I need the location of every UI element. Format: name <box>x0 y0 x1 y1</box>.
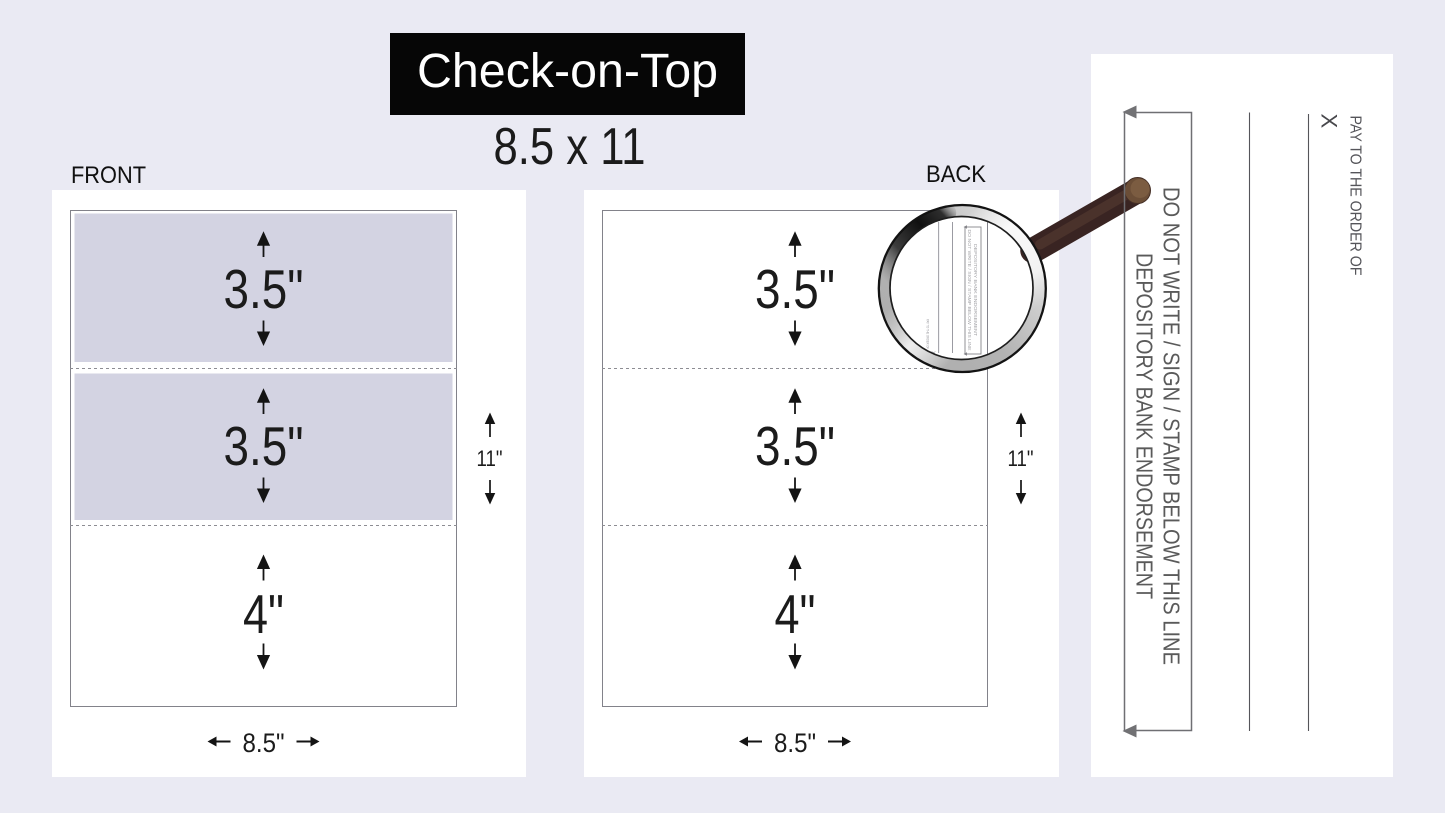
svg-text:4": 4" <box>775 583 816 645</box>
svg-text:3.5": 3.5" <box>755 415 835 477</box>
svg-text:X: X <box>1317 114 1342 129</box>
svg-text:8.5": 8.5" <box>243 728 285 758</box>
svg-text:3.5": 3.5" <box>755 258 835 320</box>
svg-text:DO NOT WRITE / SIGN / STAMP BE: DO NOT WRITE / SIGN / STAMP BELOW THIS L… <box>1159 187 1185 665</box>
svg-text:11": 11" <box>1008 446 1034 471</box>
svg-text:PAY TO THE ORDER OF: PAY TO THE ORDER OF <box>1347 116 1364 276</box>
svg-text:3.5": 3.5" <box>224 415 304 477</box>
svg-text:11": 11" <box>477 446 503 471</box>
svg-text:Check-on-Top: Check-on-Top <box>417 44 718 98</box>
svg-text:4": 4" <box>243 583 284 645</box>
svg-text:8.5": 8.5" <box>774 728 816 758</box>
svg-text:FRONT: FRONT <box>71 162 146 189</box>
svg-text:PAY TO THE ORDER OF: PAY TO THE ORDER OF <box>926 319 931 349</box>
svg-text:DO NOT WRITE / SIGN / STAMP BE: DO NOT WRITE / SIGN / STAMP BELOW THIS L… <box>967 230 972 351</box>
svg-text:3.5": 3.5" <box>224 258 304 320</box>
svg-text:DEPOSITORY BANK ENDORSEMENT: DEPOSITORY BANK ENDORSEMENT <box>1132 253 1158 599</box>
svg-text:BACK: BACK <box>926 161 986 188</box>
svg-text:8.5 x 11: 8.5 x 11 <box>494 118 646 176</box>
svg-text:DEPOSITORY BANK ENDORSEMENT: DEPOSITORY BANK ENDORSEMENT <box>973 244 978 337</box>
